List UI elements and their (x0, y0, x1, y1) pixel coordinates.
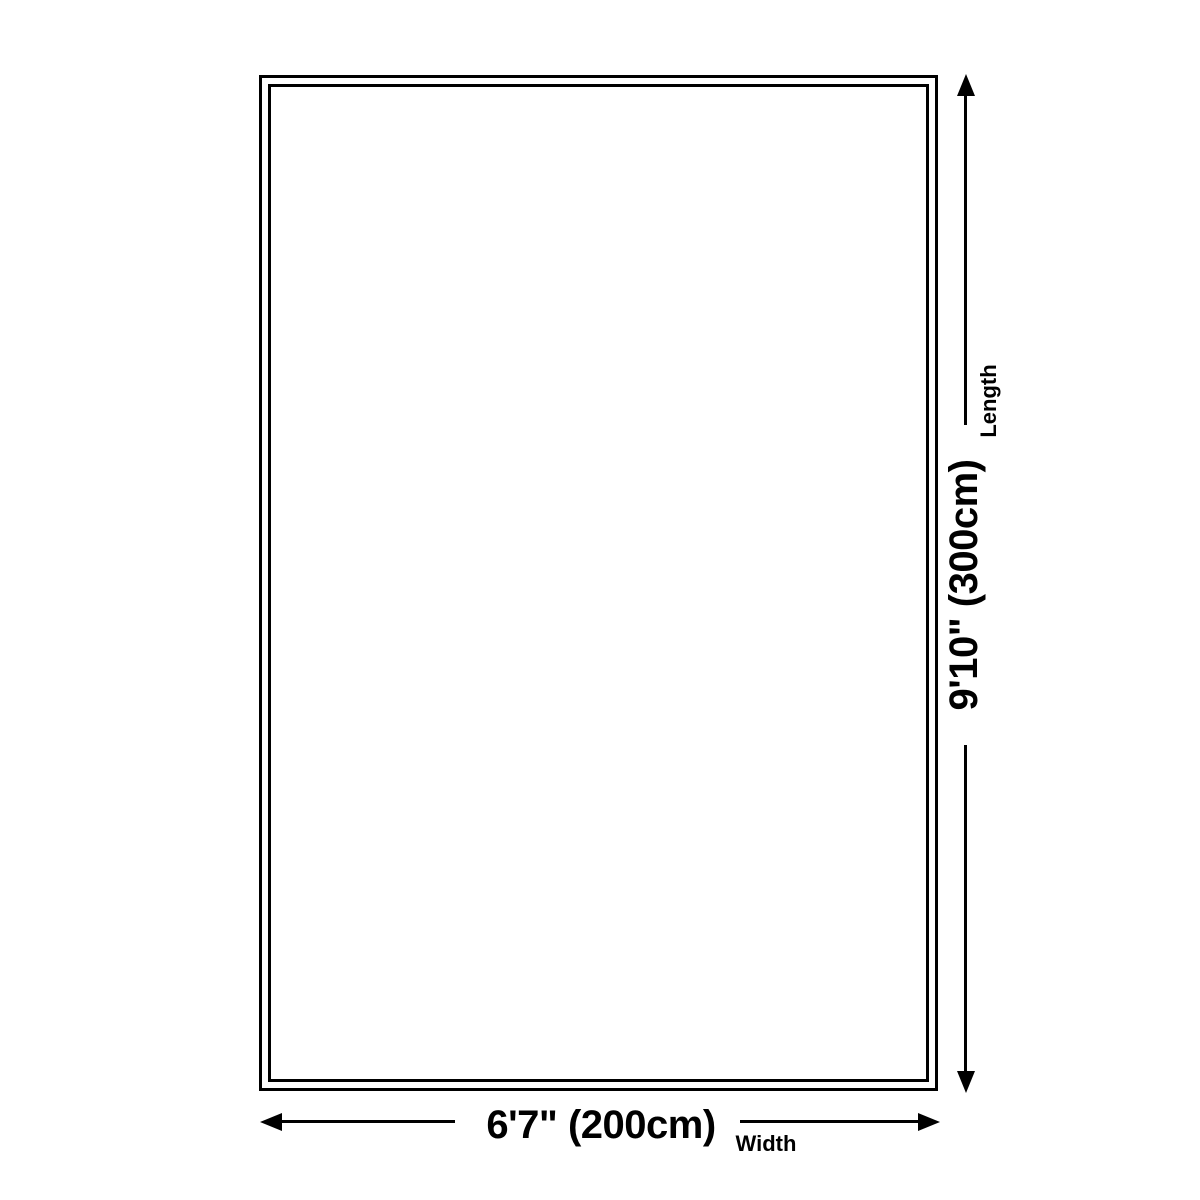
width-dimension-line-right (740, 1120, 920, 1123)
length-caption-label: Length (978, 364, 1000, 437)
arrow-right-icon (918, 1113, 940, 1131)
rug-dimension-diagram: Length 9'10" (300cm) 6'7" (200cm) Width (0, 0, 1200, 1200)
width-dimension-line-left (279, 1120, 455, 1123)
width-value-label: 6'7" (200cm) (486, 1105, 715, 1145)
arrow-down-icon (957, 1071, 975, 1093)
rug-outline (259, 75, 938, 1091)
rug-inner-border (268, 84, 929, 1082)
arrow-up-icon (957, 74, 975, 96)
length-dimension-line-lower (964, 745, 967, 1075)
length-value-label: 9'10" (300cm) (944, 459, 984, 710)
width-caption-label: Width (736, 1133, 797, 1155)
length-dimension-line-upper (964, 94, 967, 425)
